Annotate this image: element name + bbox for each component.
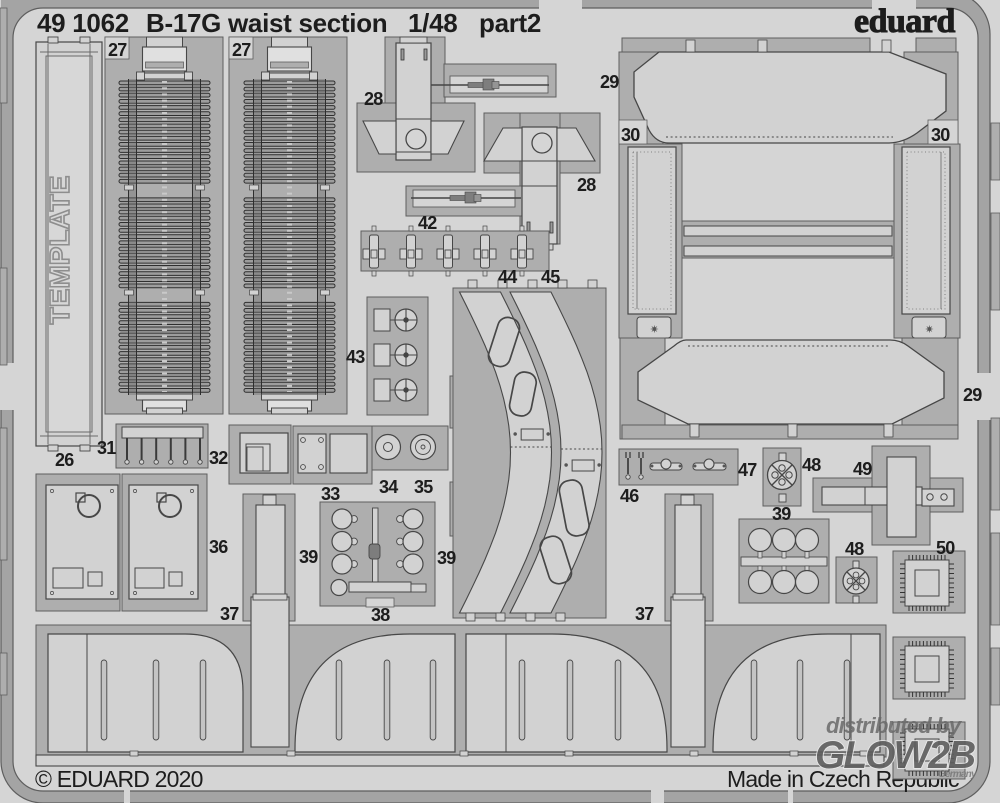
svg-text:32: 32 [209,448,228,468]
svg-text:38: 38 [371,605,390,625]
svg-text:43: 43 [346,347,365,367]
svg-text:© EDUARD 2020: © EDUARD 2020 [35,766,203,792]
svg-text:28: 28 [577,175,596,195]
svg-text:TEMPLATE: TEMPLATE [44,176,75,325]
svg-text:30: 30 [931,125,950,145]
svg-text:33: 33 [321,484,340,504]
svg-text:50: 50 [936,538,955,558]
svg-text:✷: ✷ [650,324,659,336]
svg-text:48: 48 [845,539,864,559]
svg-text:47: 47 [738,460,757,480]
svg-text:46: 46 [620,486,639,506]
svg-text:36: 36 [209,537,228,557]
svg-text:28: 28 [364,89,383,109]
svg-text:27: 27 [232,40,251,60]
svg-text:29: 29 [600,72,619,92]
svg-text:48: 48 [802,455,821,475]
svg-text:49: 49 [853,459,872,479]
svg-text:39: 39 [437,548,456,568]
svg-text:44: 44 [498,267,517,287]
svg-text:Germany: Germany [938,769,977,780]
svg-text:37: 37 [635,604,654,624]
svg-text:✷: ✷ [925,324,934,336]
svg-text:1/48: 1/48 [408,8,457,38]
svg-text:27: 27 [108,40,127,60]
svg-text:39: 39 [299,547,318,567]
svg-text:29: 29 [963,385,982,405]
svg-text:part2: part2 [479,8,541,38]
svg-text:35: 35 [414,477,433,497]
svg-text:39: 39 [772,504,791,524]
svg-text:eduard: eduard [854,3,956,40]
svg-text:B-17G waist section: B-17G waist section [146,8,387,38]
svg-text:30: 30 [621,125,640,145]
svg-text:31: 31 [97,438,116,458]
svg-text:37: 37 [220,604,239,624]
svg-text:49 1062: 49 1062 [37,8,129,38]
svg-text:42: 42 [418,213,437,233]
svg-text:34: 34 [379,477,398,497]
svg-text:45: 45 [541,267,560,287]
svg-text:26: 26 [55,450,74,470]
